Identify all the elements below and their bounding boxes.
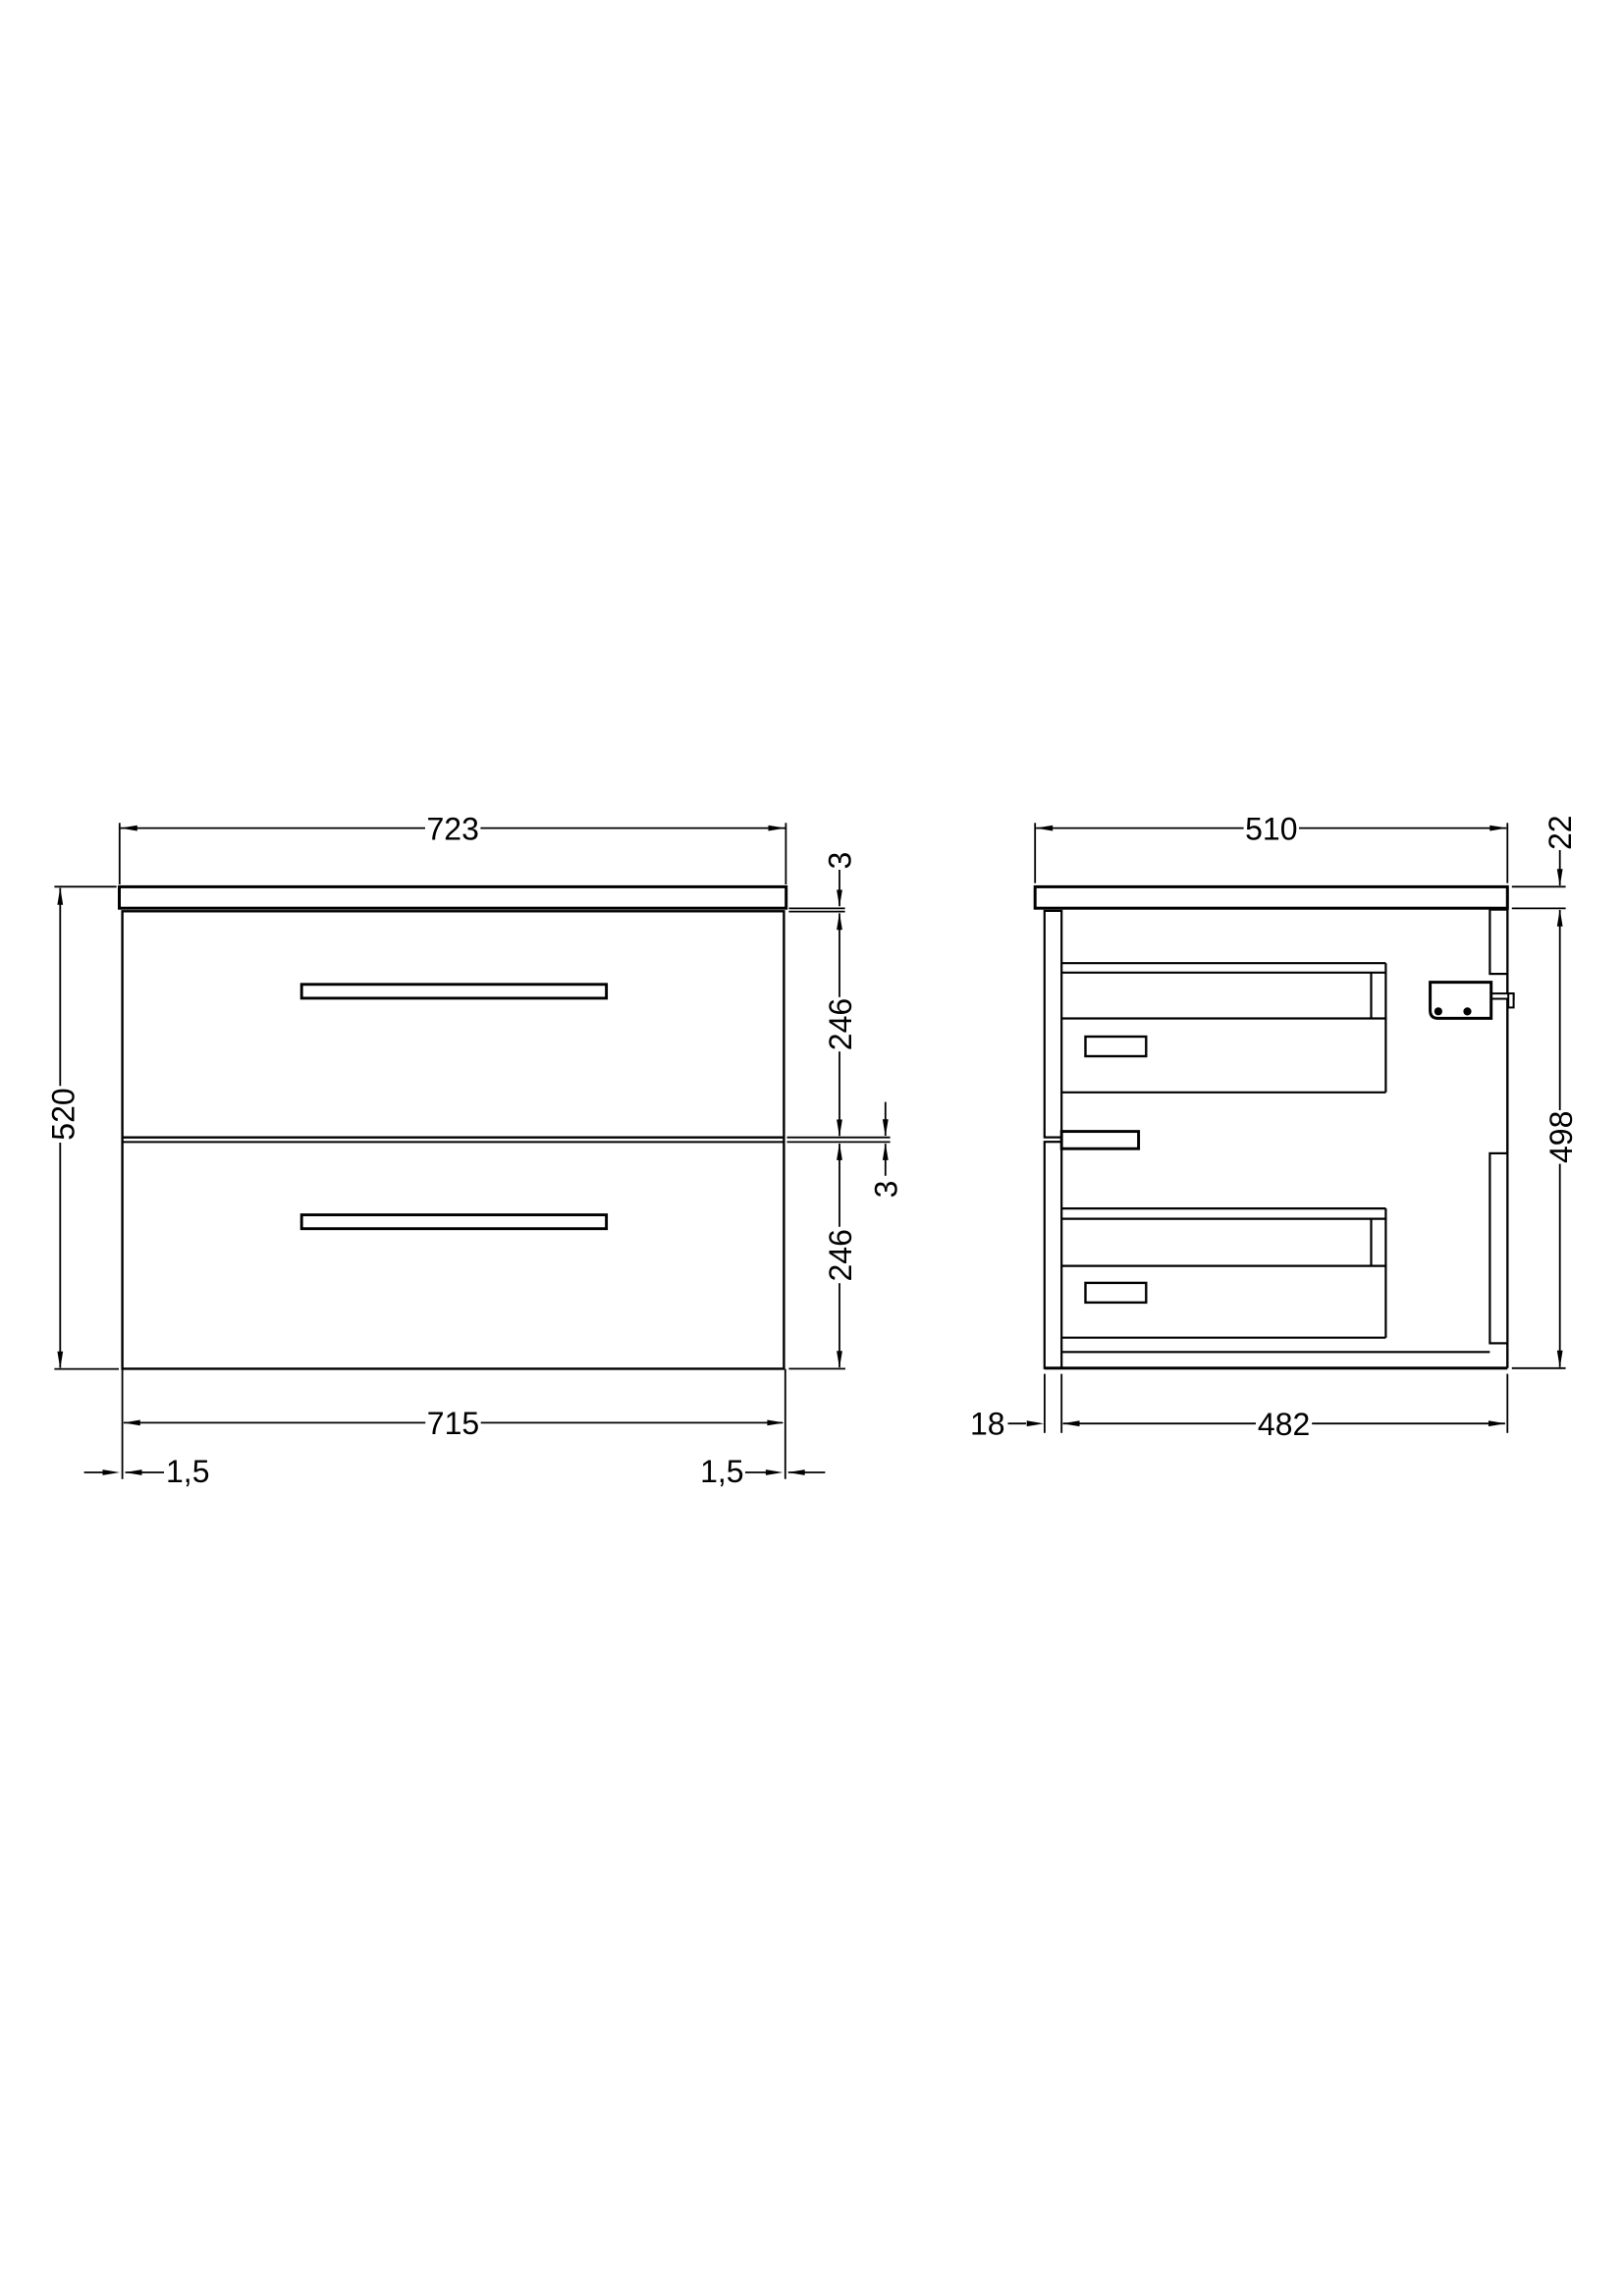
svg-text:246: 246 [823,1229,858,1281]
svg-text:3: 3 [869,1181,904,1199]
svg-text:520: 520 [45,1088,81,1140]
svg-text:18: 18 [970,1407,1005,1442]
svg-text:510: 510 [1245,811,1297,846]
svg-text:1,5: 1,5 [700,1454,743,1489]
svg-text:22: 22 [1542,815,1578,850]
svg-text:3: 3 [823,852,858,870]
svg-text:1,5: 1,5 [166,1454,209,1489]
svg-text:482: 482 [1258,1407,1310,1442]
svg-text:715: 715 [427,1406,479,1441]
svg-text:246: 246 [823,998,858,1050]
svg-text:498: 498 [1543,1111,1579,1163]
svg-text:723: 723 [427,811,479,846]
